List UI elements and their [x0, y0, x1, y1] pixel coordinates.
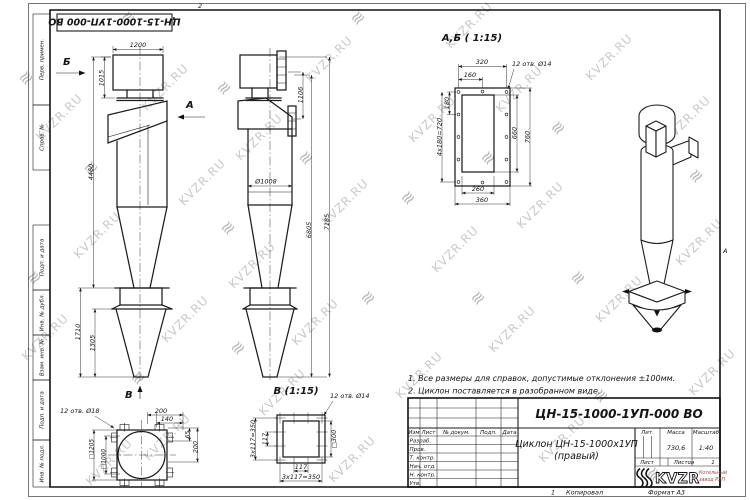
watermark-logo-icon: ≋ [476, 146, 500, 170]
label-listov: Листов [673, 460, 695, 466]
watermark-text: KVZR.RU [486, 303, 538, 355]
listov-value: 1 [711, 460, 715, 466]
dim-1710: 1710 [74, 324, 82, 341]
dim-1015: 1015 [98, 70, 106, 87]
watermark-logo-icon: ≋ [226, 336, 250, 360]
watermark-logo-icon: ≋ [216, 216, 240, 240]
watermark-text: KVZR.RU [686, 346, 738, 398]
bottom-view-holes-note: 12 отв. Ø18 [60, 407, 99, 415]
dim-160: 160 [464, 71, 476, 79]
view-arrow-label-b: Б [63, 57, 71, 68]
header-massa: Масса [667, 430, 685, 436]
row-utv: Утв. [410, 481, 422, 487]
section-ab-holes-note: 12 отв. Ø14 [512, 60, 551, 68]
strip-label-inv-dubl: Инв. № дубл. [40, 293, 46, 331]
doc-number: ЦН-15-1000-1УП-000 ВО [535, 407, 702, 421]
watermark-text: KVZR.RU [289, 296, 341, 348]
strip-label-vzam-inv: Взам. инв. № [40, 339, 46, 377]
dim-3x117-left: 3x117=350 [249, 420, 257, 458]
dim-4x180: 4x180=720 [436, 118, 444, 156]
top-stamp-number: ЦН-15-1000-1УП-000 ВО [48, 16, 181, 27]
dim-660: 660 [511, 127, 519, 139]
note-line-2: 2. Циклон поставляется в разобранном вид… [408, 387, 600, 396]
section-ab-title: А,Б ( 1:15) [441, 33, 502, 44]
watermark-logo-icon: ≋ [356, 286, 380, 310]
strip-label-podp-data-1: Подп. и дата [40, 238, 46, 276]
watermark-text: KVZR.RU [233, 111, 285, 163]
logo-subtitle-2: завод РЭП [699, 477, 725, 483]
view-arrow-label-a: А [185, 100, 194, 111]
kopiroval-label: Копировал [566, 489, 603, 497]
watermark-text: KVZR.RU [303, 33, 355, 85]
format-label: Формат А3 [648, 489, 685, 497]
dim-260: 260 [472, 185, 484, 193]
row-razrab: Разраб. [410, 439, 432, 445]
row-t-kontr: Т. контр. [410, 456, 436, 462]
view-v-holes-note: 12 отв. Ø14 [330, 392, 369, 400]
watermark-logo-icon: ≋ [126, 366, 150, 390]
dim-1106: 1106 [297, 87, 305, 104]
col-header-doc: № докум. [442, 430, 470, 436]
watermark-logo-icon: ≋ [396, 186, 420, 210]
dim-140: 140 [161, 415, 173, 423]
cyclone-drawing-svg: KVZR.RU KVZR.RU KVZR.RU KVZR.RU KVZR.RU … [0, 0, 750, 500]
dim-3x117-bottom: 3x117=350 [282, 473, 320, 481]
watermark-text: KVZR.RU [176, 156, 228, 208]
section-ab-view: А,Б ( 1:15) 320 160 12 отв. Ø14 180 4x18… [436, 33, 552, 206]
pictogram-body [641, 145, 673, 244]
watermark-logo-icon: ≋ [546, 116, 570, 140]
dim-117-bottom: 117 [295, 463, 308, 471]
logo-subtitle-1: Котельный [699, 470, 727, 476]
watermark-text: KVZR.RU [429, 223, 481, 275]
watermark-logo-icon: ≋ [294, 146, 318, 170]
technical-notes: 1. Все размеры для справок, допустимые о… [408, 374, 675, 396]
watermark-text: KVZR.RU [514, 179, 566, 231]
cyclone-pictogram [622, 105, 698, 333]
watermark-logo-icon: ≋ [14, 66, 38, 90]
dim-4460: 4460 [87, 164, 95, 181]
dim-sq300: □300 [330, 430, 338, 449]
part-name-line2: (правый) [554, 451, 599, 462]
dim-6805: 6805 [305, 222, 313, 239]
col-header-izm: Изм [408, 430, 419, 436]
strip-label-podp-data-2: Подп. и дата [40, 391, 46, 429]
watermark-logo-icon: ≋ [566, 266, 590, 290]
note-line-1: 1. Все размеры для справок, допустимые о… [408, 374, 675, 383]
fold-mark-top: 2 [198, 2, 202, 10]
watermark-text: KVZR.RU [583, 31, 635, 83]
dim-1200: 1200 [130, 41, 147, 49]
masshtab-value: 1:40 [699, 444, 714, 452]
dim-360: 360 [476, 196, 488, 204]
dim-65: 65 [186, 431, 192, 439]
watermark-logo-icon: ≋ [466, 286, 490, 310]
dim-200-right: 200 [192, 441, 200, 453]
dim-7185: 7185 [323, 214, 331, 231]
dim-sq1205: □1205 [90, 439, 96, 460]
row-nach-otd: Нач. отд. [410, 464, 437, 470]
dim-180: 180 [443, 97, 451, 109]
dim-320: 320 [476, 58, 488, 66]
watermark-logo-icon: ≋ [212, 76, 236, 100]
watermark-text: KVZR.RU [159, 293, 211, 345]
col-header-data: Дата [501, 430, 517, 436]
row-prov: Пров. [410, 447, 426, 453]
view-arrow-label-v: В [125, 390, 133, 401]
watermark-text: KVZR.RU [226, 239, 278, 291]
top-stamp: ЦН-15-1000-1УП-000 ВО [48, 14, 181, 31]
drawing-sheet: KVZR.RU KVZR.RU KVZR.RU KVZR.RU KVZR.RU … [0, 0, 750, 500]
sheet-frame: 2 А [29, 2, 746, 497]
dim-sq1000: □1000 [102, 449, 108, 470]
watermark-logo-icon: ≋ [684, 164, 708, 188]
title-block: ЦН-15-1000-1УП-000 ВО Циклон ЦН-15-1000х… [408, 398, 727, 488]
watermark-text: KVZR.RU [673, 216, 725, 268]
header-lit: Лит. [640, 430, 654, 436]
view-v-title: В (1:15) [273, 386, 318, 397]
watermark-text: KVZR.RU [493, 63, 545, 115]
dim-dia-1008: Ø1008 [254, 178, 277, 186]
header-masshtab: Масштаб [693, 430, 720, 436]
part-name-line1: Циклон ЦН-15-1000х1УП [515, 439, 638, 450]
massa-value: 730,6 [667, 444, 686, 452]
left-frame-strip: Перв. примен. Справ. № Подп. и дата Инв.… [33, 14, 50, 487]
row-n-kontr: Н. контр. [410, 473, 437, 479]
label-list: Лист [639, 460, 655, 466]
side-view: Ø1008 1106 6805 7185 [238, 48, 331, 380]
watermark-text: KVZR.RU [71, 209, 123, 261]
strip-label-sprav: Справ. № [40, 124, 46, 151]
dim-760: 760 [524, 131, 532, 143]
col-header-podp: Подп. [480, 430, 497, 436]
fold-mark-bottom: 1 [551, 489, 555, 497]
strip-label-inv-podl: Инв. № подл. [40, 444, 46, 482]
dim-1305: 1305 [89, 335, 97, 352]
fold-mark-right: А [722, 247, 727, 255]
dim-117-left: 117 [261, 432, 269, 445]
dim-200-top: 200 [155, 407, 167, 415]
strip-label-perv-primen: Перв. примен. [40, 39, 46, 81]
sheet-footer: 1 Копировал Формат А3 [551, 489, 685, 497]
kvzr-logo-text: KVZR [655, 471, 700, 487]
col-header-list: Лист [421, 430, 437, 436]
